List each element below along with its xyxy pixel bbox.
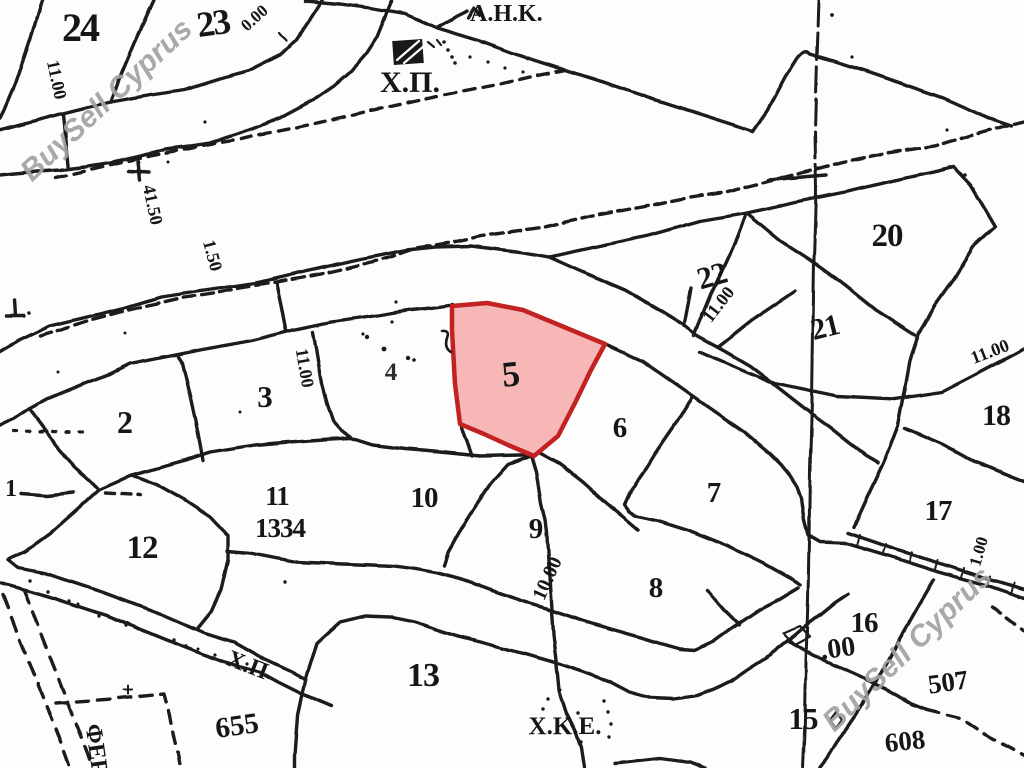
svg-text:BuySell Cyprus: BuySell Cyprus <box>14 12 199 187</box>
svg-text:ΦΕΡ: ΦΕΡ <box>80 722 113 768</box>
svg-text:1: 1 <box>5 476 17 502</box>
svg-text:11.00: 11.00 <box>43 58 71 101</box>
svg-text:17: 17 <box>925 495 953 527</box>
svg-text:7: 7 <box>707 477 722 509</box>
svg-text:1334: 1334 <box>255 513 306 543</box>
svg-text:4: 4 <box>385 359 398 386</box>
svg-text:10.00: 10.00 <box>528 554 566 604</box>
svg-text:9: 9 <box>529 513 544 545</box>
svg-text:20: 20 <box>872 218 904 254</box>
svg-text:13: 13 <box>407 657 439 694</box>
svg-text:11.00: 11.00 <box>292 347 319 389</box>
svg-text:15: 15 <box>789 701 819 736</box>
svg-text:2: 2 <box>117 404 133 440</box>
svg-text:1.00: 1.00 <box>965 535 991 569</box>
svg-text:10: 10 <box>411 482 439 514</box>
svg-text:608: 608 <box>883 724 926 758</box>
svg-text:A.H.K.: A.H.K. <box>470 1 543 27</box>
svg-text:11: 11 <box>265 481 289 511</box>
svg-text:11.00: 11.00 <box>968 335 1012 368</box>
svg-text:8: 8 <box>649 572 664 604</box>
svg-text:6: 6 <box>613 412 628 444</box>
svg-text:12: 12 <box>127 530 159 566</box>
svg-text:23: 23 <box>194 1 232 45</box>
svg-text:507: 507 <box>926 664 970 699</box>
svg-text:0.00: 0.00 <box>237 1 272 35</box>
svg-text:655: 655 <box>213 707 261 745</box>
svg-text:1.50: 1.50 <box>199 238 226 274</box>
svg-text:Χ.Π.: Χ.Π. <box>380 66 440 99</box>
svg-text:24: 24 <box>62 5 100 50</box>
svg-text:Χ.Κ.Ε.: Χ.Κ.Ε. <box>529 713 602 740</box>
svg-text:16: 16 <box>851 607 879 639</box>
svg-text:18: 18 <box>982 399 1010 432</box>
svg-text:.00: .00 <box>818 631 857 667</box>
svg-text:Χ.Π: Χ.Π <box>223 646 272 685</box>
svg-text:3: 3 <box>257 379 273 414</box>
svg-text:41.50: 41.50 <box>139 183 167 227</box>
